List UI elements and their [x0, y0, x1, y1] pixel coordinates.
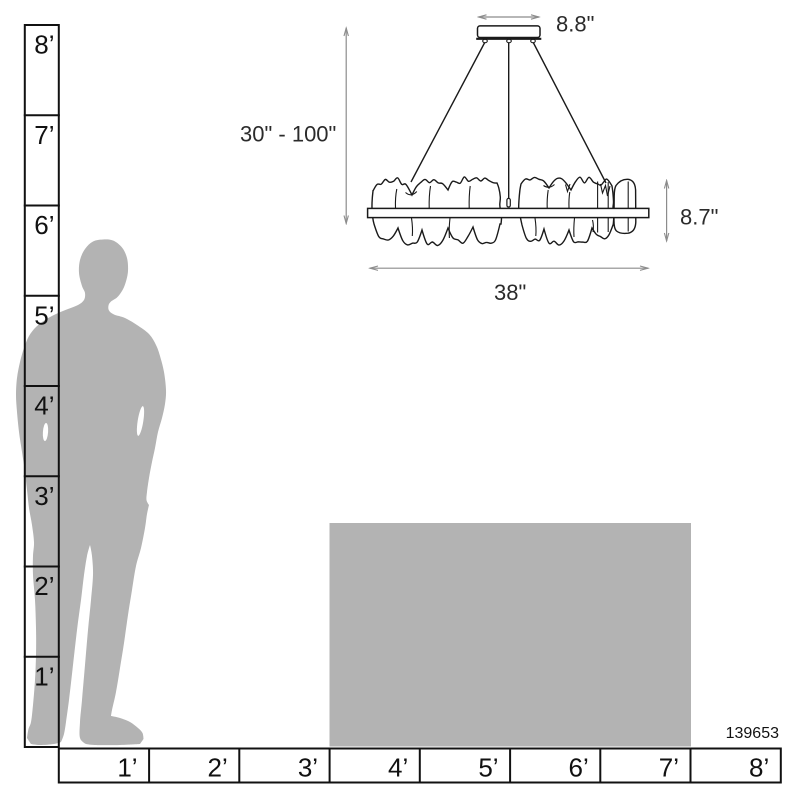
svg-text:5’: 5’: [34, 300, 54, 330]
svg-text:8’: 8’: [749, 752, 769, 782]
svg-text:3’: 3’: [34, 481, 54, 511]
svg-text:30" - 100": 30" - 100": [240, 122, 336, 147]
svg-text:2’: 2’: [34, 571, 54, 601]
svg-text:6’: 6’: [569, 752, 589, 782]
svg-text:2’: 2’: [208, 752, 228, 782]
svg-text:1’: 1’: [117, 752, 137, 782]
svg-text:4’: 4’: [388, 752, 408, 782]
svg-text:1’: 1’: [34, 661, 54, 691]
svg-text:5’: 5’: [478, 752, 498, 782]
svg-text:8.8": 8.8": [556, 12, 594, 37]
svg-text:4’: 4’: [34, 391, 54, 421]
svg-text:6’: 6’: [34, 210, 54, 240]
svg-text:139653: 139653: [726, 725, 779, 742]
svg-text:7’: 7’: [34, 120, 54, 150]
svg-text:3’: 3’: [298, 752, 318, 782]
svg-text:38": 38": [494, 280, 526, 305]
svg-text:8’: 8’: [34, 30, 54, 60]
svg-text:7’: 7’: [659, 752, 679, 782]
svg-text:8.7": 8.7": [680, 205, 718, 230]
